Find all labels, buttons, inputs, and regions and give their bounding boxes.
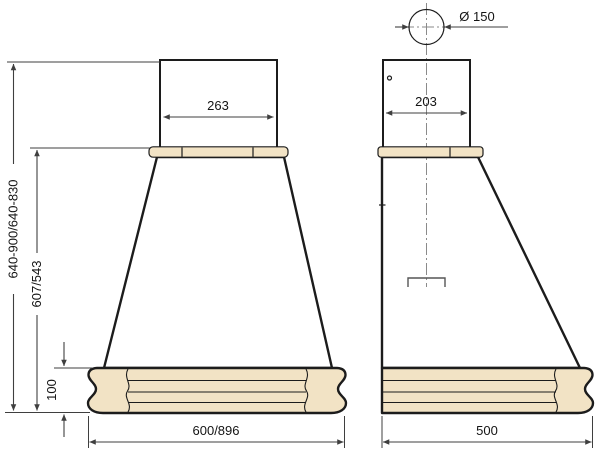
- front-hood-body: [104, 157, 332, 368]
- duct-outlet: Ø 150: [395, 9, 508, 45]
- front-width-label: 600/896: [193, 423, 240, 438]
- body-height-label: 607/543: [29, 261, 44, 308]
- side-depth-label: 500: [476, 423, 498, 438]
- chimney-width-label: 263: [207, 98, 229, 113]
- dim-chimney-width: 263: [164, 98, 274, 117]
- dim-total-height: 640-900/640-830: [6, 64, 21, 411]
- side-top-trim: [378, 147, 483, 157]
- dim-base-height: 100: [44, 342, 64, 437]
- hood-dimension-drawing: 263 Ø 150 203: [0, 0, 600, 450]
- side-hood-body: [382, 157, 580, 368]
- side-base-molding: [382, 368, 593, 413]
- screw-hole: [388, 76, 392, 80]
- duct-diameter-label: Ø 150: [459, 9, 494, 24]
- front-base-molding: [88, 368, 346, 413]
- total-height-label: 640-900/640-830: [6, 179, 21, 278]
- dim-side-depth: 500: [382, 416, 593, 448]
- front-top-trim: [149, 147, 288, 157]
- dim-front-width: 600/896: [89, 416, 345, 448]
- front-view: 263: [88, 60, 346, 413]
- base-height-label: 100: [44, 379, 59, 401]
- dim-body-height: 607/543: [29, 150, 44, 411]
- side-view: Ø 150 203: [378, 3, 593, 413]
- drawing-canvas: 263 Ø 150 203: [0, 0, 600, 450]
- chimney-depth-label: 203: [415, 94, 437, 109]
